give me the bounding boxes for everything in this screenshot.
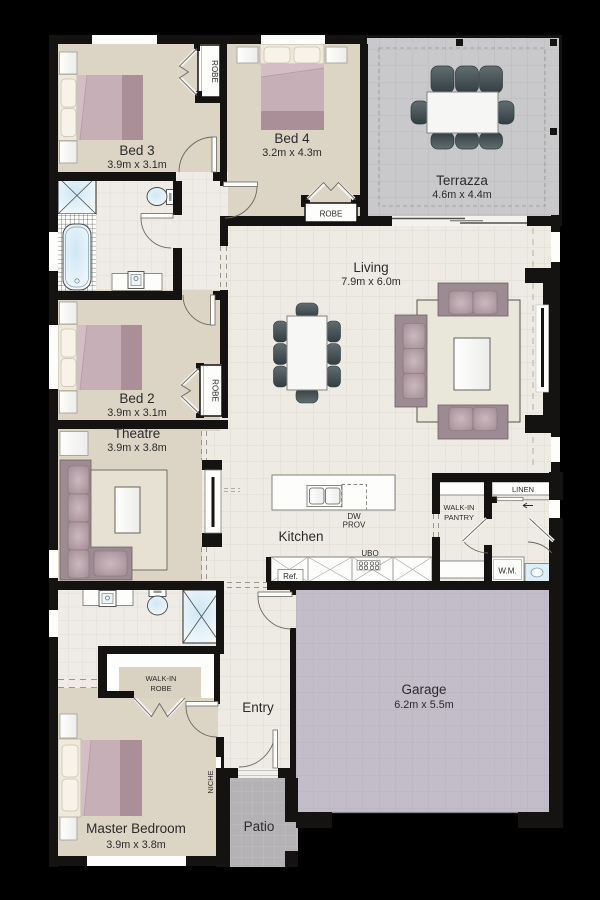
svg-text:Theatre: Theatre: [114, 426, 161, 441]
svg-text:Master Bedroom: Master Bedroom: [86, 821, 186, 836]
svg-text:Bed 2: Bed 2: [119, 391, 154, 406]
svg-text:3.9m x 3.1m: 3.9m x 3.1m: [107, 407, 166, 419]
svg-text:3.2m x 4.3m: 3.2m x 4.3m: [262, 147, 321, 159]
svg-text:NICHE: NICHE: [206, 770, 215, 793]
svg-text:3.9m x 3.8m: 3.9m x 3.8m: [106, 839, 165, 851]
svg-text:7.9m x 6.0m: 7.9m x 6.0m: [341, 276, 400, 288]
svg-text:WALK-IN: WALK-IN: [444, 503, 475, 512]
svg-text:6.2m x 5.5m: 6.2m x 5.5m: [394, 699, 453, 711]
svg-text:LINEN: LINEN: [512, 485, 534, 494]
svg-text:3.9m x 3.1m: 3.9m x 3.1m: [107, 159, 166, 171]
svg-text:3.9m x 3.8m: 3.9m x 3.8m: [107, 442, 166, 454]
svg-text:Terrazza: Terrazza: [436, 173, 488, 188]
svg-text:UBO: UBO: [361, 549, 378, 558]
svg-text:Entry: Entry: [242, 700, 274, 715]
svg-text:ROBE: ROBE: [320, 210, 343, 219]
svg-text:ROBE: ROBE: [210, 60, 219, 83]
svg-text:4.6m x 4.4m: 4.6m x 4.4m: [432, 189, 491, 201]
svg-text:ROBE: ROBE: [211, 379, 220, 402]
svg-text:Ref.: Ref.: [283, 572, 298, 581]
svg-text:Bed 3: Bed 3: [119, 143, 154, 158]
svg-text:Kitchen: Kitchen: [278, 529, 323, 544]
svg-text:Garage: Garage: [401, 682, 446, 697]
svg-text:ROBE: ROBE: [150, 684, 171, 693]
svg-text:WALK-IN: WALK-IN: [146, 674, 177, 683]
svg-text:W.M.: W.M.: [498, 567, 516, 576]
svg-text:Living: Living: [353, 260, 388, 275]
svg-text:PROV: PROV: [343, 521, 366, 530]
svg-text:PANTRY: PANTRY: [444, 513, 474, 522]
svg-text:Bed 4: Bed 4: [274, 131, 310, 146]
svg-text:Patio: Patio: [244, 819, 275, 834]
